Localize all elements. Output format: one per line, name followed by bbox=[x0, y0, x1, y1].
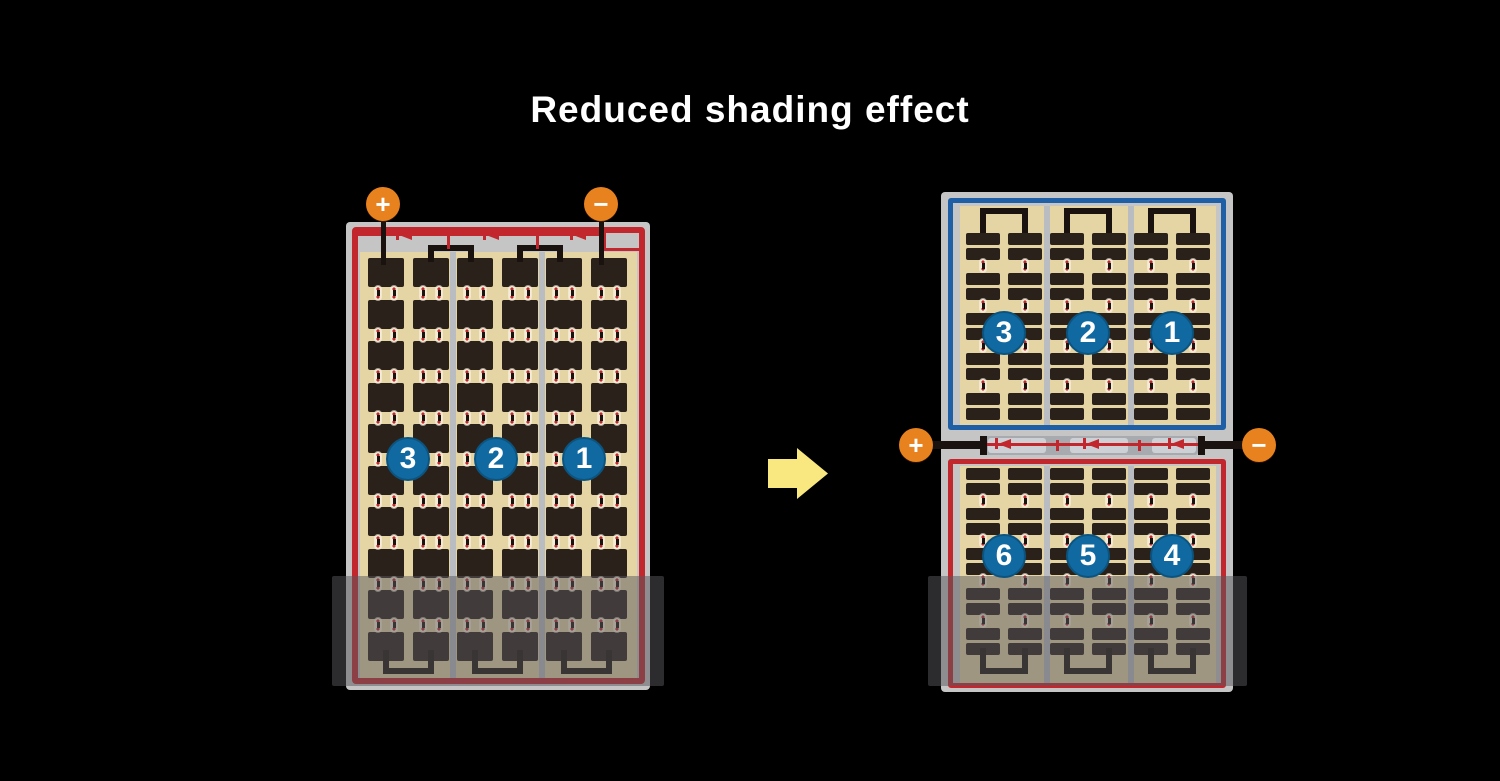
diode-separator bbox=[1138, 440, 1141, 451]
diode-icon bbox=[995, 438, 1011, 449]
string-number-badge: 5 bbox=[1066, 534, 1110, 578]
diode-icon bbox=[483, 229, 499, 240]
diode-line-step bbox=[603, 248, 641, 251]
string-number-badge: 1 bbox=[1150, 311, 1194, 355]
string-number-badge: 2 bbox=[1066, 311, 1110, 355]
string-number-badge: 4 bbox=[1150, 534, 1194, 578]
plus-terminal-wire bbox=[381, 217, 386, 265]
string-number-badge: 3 bbox=[982, 311, 1026, 355]
shading-overlay-right bbox=[928, 576, 1247, 686]
string-number-badge: 1 bbox=[562, 437, 606, 481]
minus-terminal-icon: − bbox=[1242, 428, 1276, 462]
minus-terminal-icon: − bbox=[584, 187, 618, 221]
plus-terminal-wire bbox=[932, 441, 985, 449]
junction-end-bar bbox=[1198, 436, 1205, 455]
junction-end-bar bbox=[980, 436, 987, 455]
plus-terminal-icon: + bbox=[899, 428, 933, 462]
diode-tap-stub bbox=[447, 235, 450, 249]
left-bypass-diode-line bbox=[352, 233, 606, 236]
minus-terminal-wire bbox=[1203, 441, 1245, 449]
string-number-badge: 3 bbox=[386, 437, 430, 481]
minus-terminal-wire bbox=[599, 217, 604, 265]
diagram-stage: Reduced shading effect + − 3 2 1 + − bbox=[0, 0, 1500, 781]
string-number-badge: 6 bbox=[982, 534, 1026, 578]
string-number-badge: 2 bbox=[474, 437, 518, 481]
plus-terminal-icon: + bbox=[366, 187, 400, 221]
diode-icon bbox=[1168, 438, 1184, 449]
diode-icon bbox=[396, 229, 412, 240]
diode-separator bbox=[1056, 440, 1059, 451]
diode-icon bbox=[1083, 438, 1099, 449]
diagram-title: Reduced shading effect bbox=[0, 89, 1500, 131]
diode-tap-stub bbox=[536, 235, 539, 249]
diode-icon bbox=[570, 229, 586, 240]
shading-overlay-left bbox=[332, 576, 664, 686]
